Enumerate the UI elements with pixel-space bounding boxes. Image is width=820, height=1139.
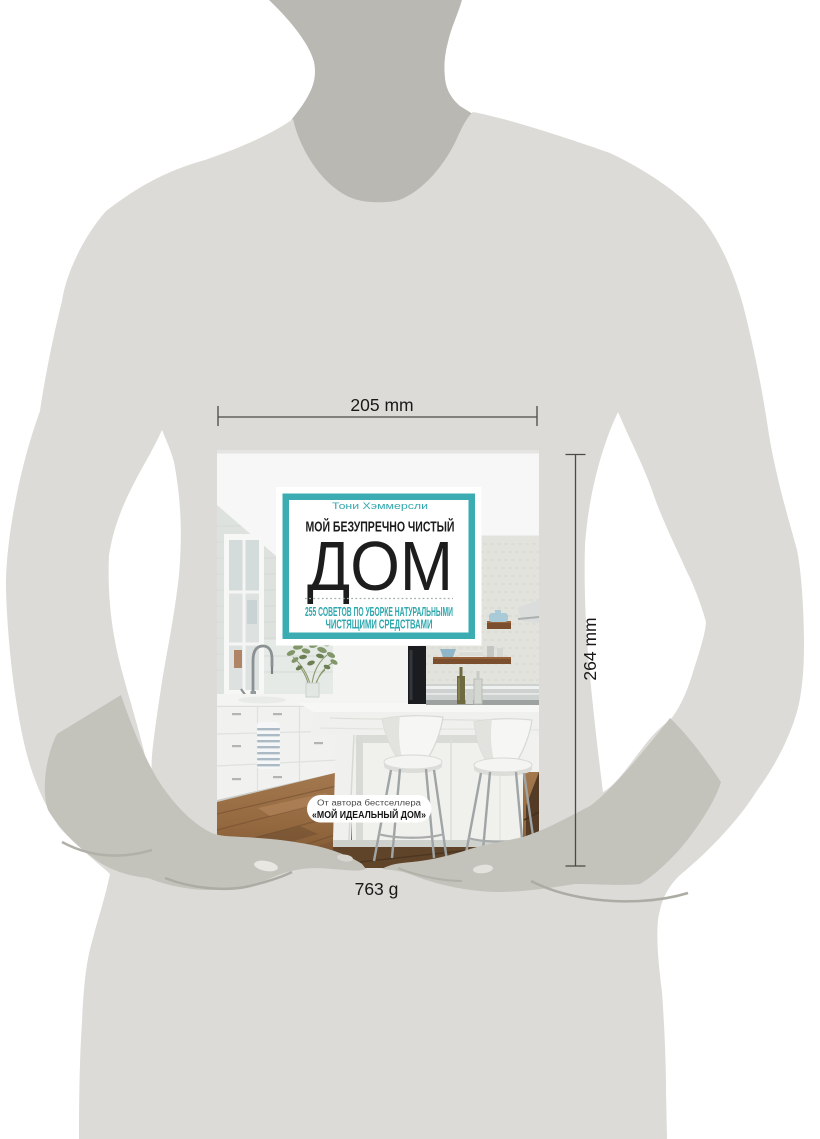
svg-text:ДОМ: ДОМ (307, 527, 453, 605)
svg-text:«МОЙ ИДЕАЛЬНЫЙ ДОМ»: «МОЙ ИДЕАЛЬНЫЙ ДОМ» (312, 808, 426, 821)
svg-text:205 mm: 205 mm (350, 395, 413, 415)
svg-text:Тони Хэммерсли: Тони Хэммерсли (332, 501, 428, 512)
svg-text:264 mm: 264 mm (580, 617, 600, 680)
svg-text:От автора бестселлера: От автора бестселлера (317, 799, 422, 808)
svg-text:763 g: 763 g (355, 879, 399, 899)
svg-text:ЧИСТЯЩИМИ СРЕДСТВАМИ: ЧИСТЯЩИМИ СРЕДСТВАМИ (326, 618, 433, 632)
